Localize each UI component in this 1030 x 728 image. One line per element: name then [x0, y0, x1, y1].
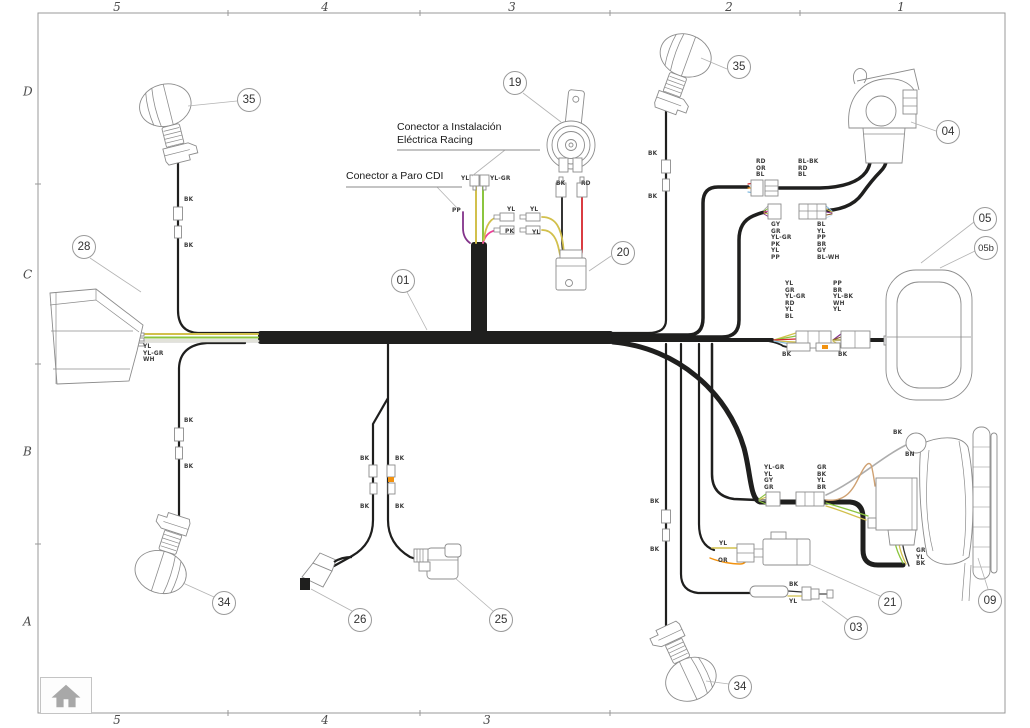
- grid-label-bottom-3: 3: [483, 713, 491, 727]
- wire-front-right-signal: [608, 110, 666, 333]
- components: [50, 27, 997, 709]
- wire-label-bk-37: BK: [789, 582, 798, 589]
- connector-6way-right: [799, 204, 826, 219]
- connector-mid-right: [841, 331, 870, 348]
- grid-label-left-B: B: [23, 444, 32, 458]
- relay-20: [556, 250, 586, 290]
- wire-label-bk-14: BK: [648, 151, 657, 158]
- wire-label-yl-gr-24: YL-GR YL GY GR: [764, 465, 785, 491]
- connector-rd-or-bl: [751, 180, 763, 196]
- note-paro-cdi: Conector a Paro CDI: [346, 170, 443, 183]
- grid-label-top-3: 3: [508, 0, 516, 14]
- wire-label-bk-22: BK: [782, 352, 791, 359]
- wire-label-pp-7: PP: [452, 208, 461, 215]
- callout-05b-6[interactable]: 05b: [974, 236, 998, 260]
- wire-label-bk-1: BK: [184, 243, 193, 250]
- wire-label-yl-38: YL: [789, 599, 797, 606]
- wire-label-yl-5: YL: [461, 176, 469, 183]
- wire-label-bk-12: BK: [556, 181, 565, 188]
- grid-label-left-A: A: [23, 614, 32, 628]
- component-03-spark-plug: [802, 587, 833, 600]
- grid-label-bottom-4: 4: [321, 713, 329, 727]
- wire-label-bk-4: BK: [184, 464, 193, 471]
- wire-label-rd-13: RD: [581, 181, 591, 188]
- component-28-tail-unit: [50, 289, 143, 384]
- component-04-throttle-housing: [849, 68, 919, 163]
- callout-04-3[interactable]: 04: [936, 120, 960, 144]
- wiring-diagram-page: 54321543DCBA BKBKYL YL-GR WHBKBKYLYL-GRP…: [0, 0, 1030, 728]
- callout-05-5[interactable]: 05: [973, 207, 997, 231]
- wire-label-gy-18: GY GR YL-GR PK YL PP: [771, 222, 792, 262]
- wire-label-bk-15: BK: [648, 194, 657, 201]
- component-21-flasher-relay: [754, 532, 810, 565]
- connector-mid-bk-left: [787, 343, 810, 351]
- callout-09-14[interactable]: 09: [978, 589, 1002, 613]
- headlight-bulb: [906, 433, 926, 453]
- callout-26-10[interactable]: 26: [348, 608, 372, 632]
- callout-35-2[interactable]: 35: [727, 55, 751, 79]
- callout-03-12[interactable]: 03: [844, 616, 868, 640]
- turn-signal-rear-right: [642, 615, 723, 709]
- wire-label-bl-19: BL YL PP BR GY BL-WH: [817, 222, 840, 262]
- wire-label-bk-30: BK: [650, 547, 659, 554]
- wire-label-bl-bk-17: BL-BK RD BL: [798, 159, 818, 179]
- grid-label-bottom-5: 5: [113, 713, 121, 727]
- turn-signal-front-right: [641, 27, 717, 120]
- wire-label-bk-3: BK: [184, 418, 193, 425]
- callout-28-4[interactable]: 28: [72, 235, 96, 259]
- spark-lead-sleeve: [750, 586, 788, 597]
- wire-label-bk-34: BK: [395, 504, 404, 511]
- grid-label-left-D: D: [23, 84, 33, 98]
- wire-label-yl-2: YL YL-GR WH: [143, 344, 164, 364]
- grid-label-top-1: 1: [897, 0, 905, 14]
- component-26-spark-plug-cap: [300, 553, 352, 590]
- wire-coil-and-cap: [334, 344, 416, 566]
- callout-34-15[interactable]: 34: [728, 675, 752, 699]
- component-05-pad: [886, 270, 972, 400]
- note-racing: Conector a Instalación Eléctrica Racing: [397, 121, 501, 146]
- wire-label-bk-32: BK: [395, 456, 404, 463]
- wire-label-pp-21: PP BR YL-BK WH YL: [833, 281, 853, 314]
- callout-19-1[interactable]: 19: [503, 71, 527, 95]
- wire-rear-left-signal: [179, 343, 245, 517]
- component-09-headlight: [868, 427, 997, 601]
- wire-label-yl-gr-6: YL-GR: [490, 176, 511, 183]
- callout-20-7[interactable]: 20: [611, 241, 635, 265]
- callout-01-8[interactable]: 01: [391, 269, 415, 293]
- colored-wires: [145, 183, 909, 596]
- connector-6way-left: [768, 204, 781, 219]
- wire-label-yl-10: YL: [530, 207, 538, 214]
- wire-label-yl-20: YL GR YL-GR RD YL BL: [785, 281, 806, 321]
- diagram-artwork: [0, 0, 1030, 728]
- wire-label-bk-33: BK: [360, 504, 369, 511]
- orange-sleeve: [388, 477, 394, 482]
- cable-headlight: [613, 342, 903, 565]
- wire-label-yl-8: YL: [507, 207, 515, 214]
- wire-label-gr-28: GR YL BK: [916, 548, 926, 568]
- cable-connector-6way: [613, 212, 765, 337]
- home-icon: [46, 682, 86, 710]
- callout-35-0[interactable]: 35: [237, 88, 261, 112]
- racing-bundle-sleeve: [471, 242, 487, 334]
- wire-label-bk-0: BK: [184, 197, 193, 204]
- horn: [547, 89, 595, 172]
- grid-label-left-C: C: [23, 267, 32, 281]
- grid-label-top-5: 5: [113, 0, 121, 14]
- connector-headlight-left: [766, 492, 780, 506]
- wire-label-bk-23: BK: [838, 352, 847, 359]
- turn-signal-rear-left: [129, 508, 203, 600]
- wire-label-bk-31: BK: [360, 456, 369, 463]
- wire-label-rd-16: RD OR BL: [756, 159, 766, 179]
- grid-label-top-4: 4: [321, 0, 329, 14]
- turn-signal-front-left: [135, 79, 205, 169]
- component-25-ignition-coil: [414, 544, 461, 579]
- callout-34-9[interactable]: 34: [212, 591, 236, 615]
- connector-headlight-right: [796, 492, 824, 506]
- wire-label-yl-11: YL: [532, 230, 540, 237]
- grid-label-top-2: 2: [725, 0, 733, 14]
- callout-25-11[interactable]: 25: [489, 608, 513, 632]
- cable-connector-rd-or-bl: [613, 187, 748, 335]
- wire-label-gr-25: GR BK YL BR: [817, 465, 827, 491]
- wire-label-or-36: OR: [718, 558, 728, 565]
- wire-label-bk-26: BK: [893, 430, 902, 437]
- cable-04-left: [779, 161, 870, 188]
- home-button[interactable]: [40, 677, 92, 714]
- wire-label-pk-9: PK: [505, 229, 514, 236]
- wire-label-yl-35: YL: [719, 541, 727, 548]
- wire-label-bk-29: BK: [650, 499, 659, 506]
- wire-label-bn-27: BN: [905, 452, 915, 459]
- callout-21-13[interactable]: 21: [878, 591, 902, 615]
- main-harness: [258, 331, 613, 344]
- racing-connector: [470, 175, 479, 186]
